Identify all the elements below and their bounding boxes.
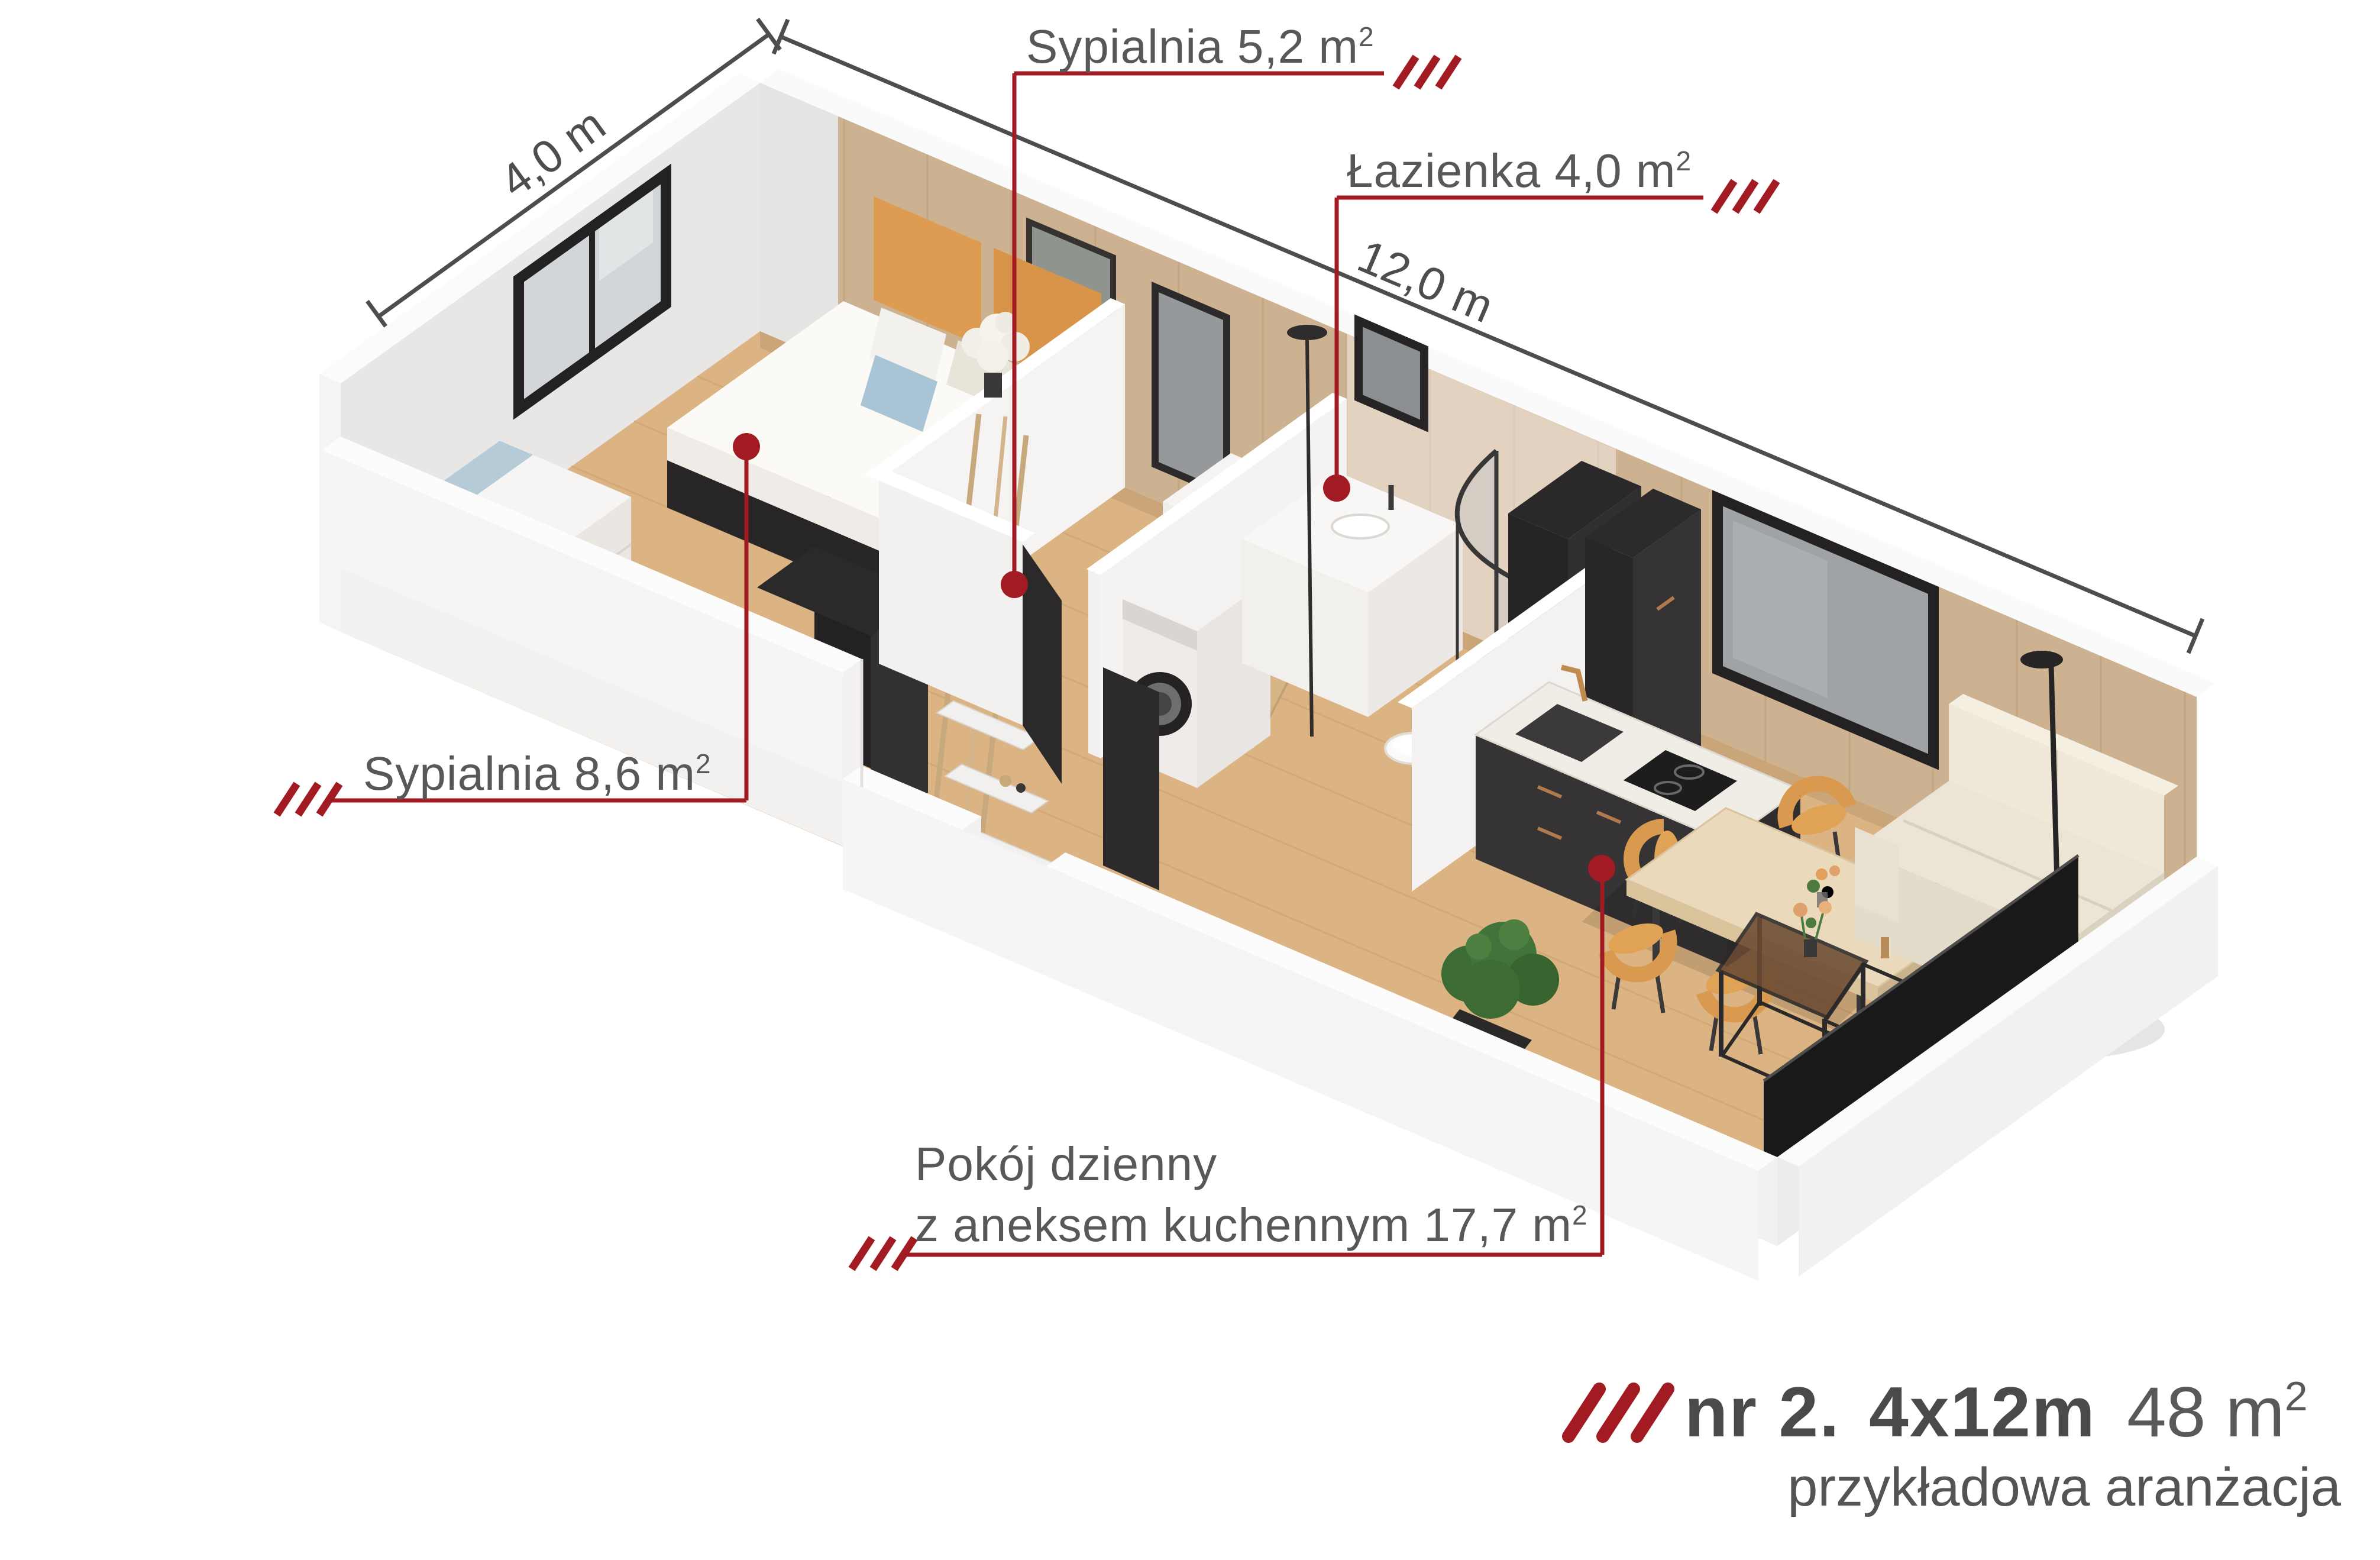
label-bathroom: Łazienka 4,0 m2 [1347,144,1692,197]
label-bedroom-large: Sypialnia 8,6 m2 [363,747,712,800]
label-bedroom-small: Sypialnia 5,2 m2 [1026,20,1375,73]
leader-dot-living [1588,855,1615,882]
title-area: 48 m2 [2127,1372,2308,1452]
brand-slashes [1569,1389,1668,1436]
floorplan-page: 4,0 m 12,0 m [0,0,2380,1560]
label-living-line1: Pokój dzienny [915,1138,1217,1190]
shower-head [1287,325,1327,340]
shelf-item [1016,783,1026,793]
title-group: nr 2. 4x12m 48 m2 przykładowa aranżacja [1569,1372,2342,1517]
title-subtitle: przykładowa aranżacja [1787,1457,2342,1517]
leader-dot-bathroom [1323,474,1350,502]
shelf-item [1000,775,1011,787]
leader-dot-bedroom-small [1001,571,1028,598]
title-number: nr 2. [1684,1372,1840,1452]
title-size: 4x12m [1869,1372,2096,1452]
floorplan-svg: 4,0 m 12,0 m [0,0,2380,1560]
label-living-line2: z aneksem kuchennym 17,7 m2 [915,1199,1588,1251]
leader-dot-bedroom-large [733,433,760,460]
washbasin [1332,515,1389,538]
entry-door-leaf [1103,667,1159,890]
dimension-label-length: 12,0 m [1351,230,1501,332]
